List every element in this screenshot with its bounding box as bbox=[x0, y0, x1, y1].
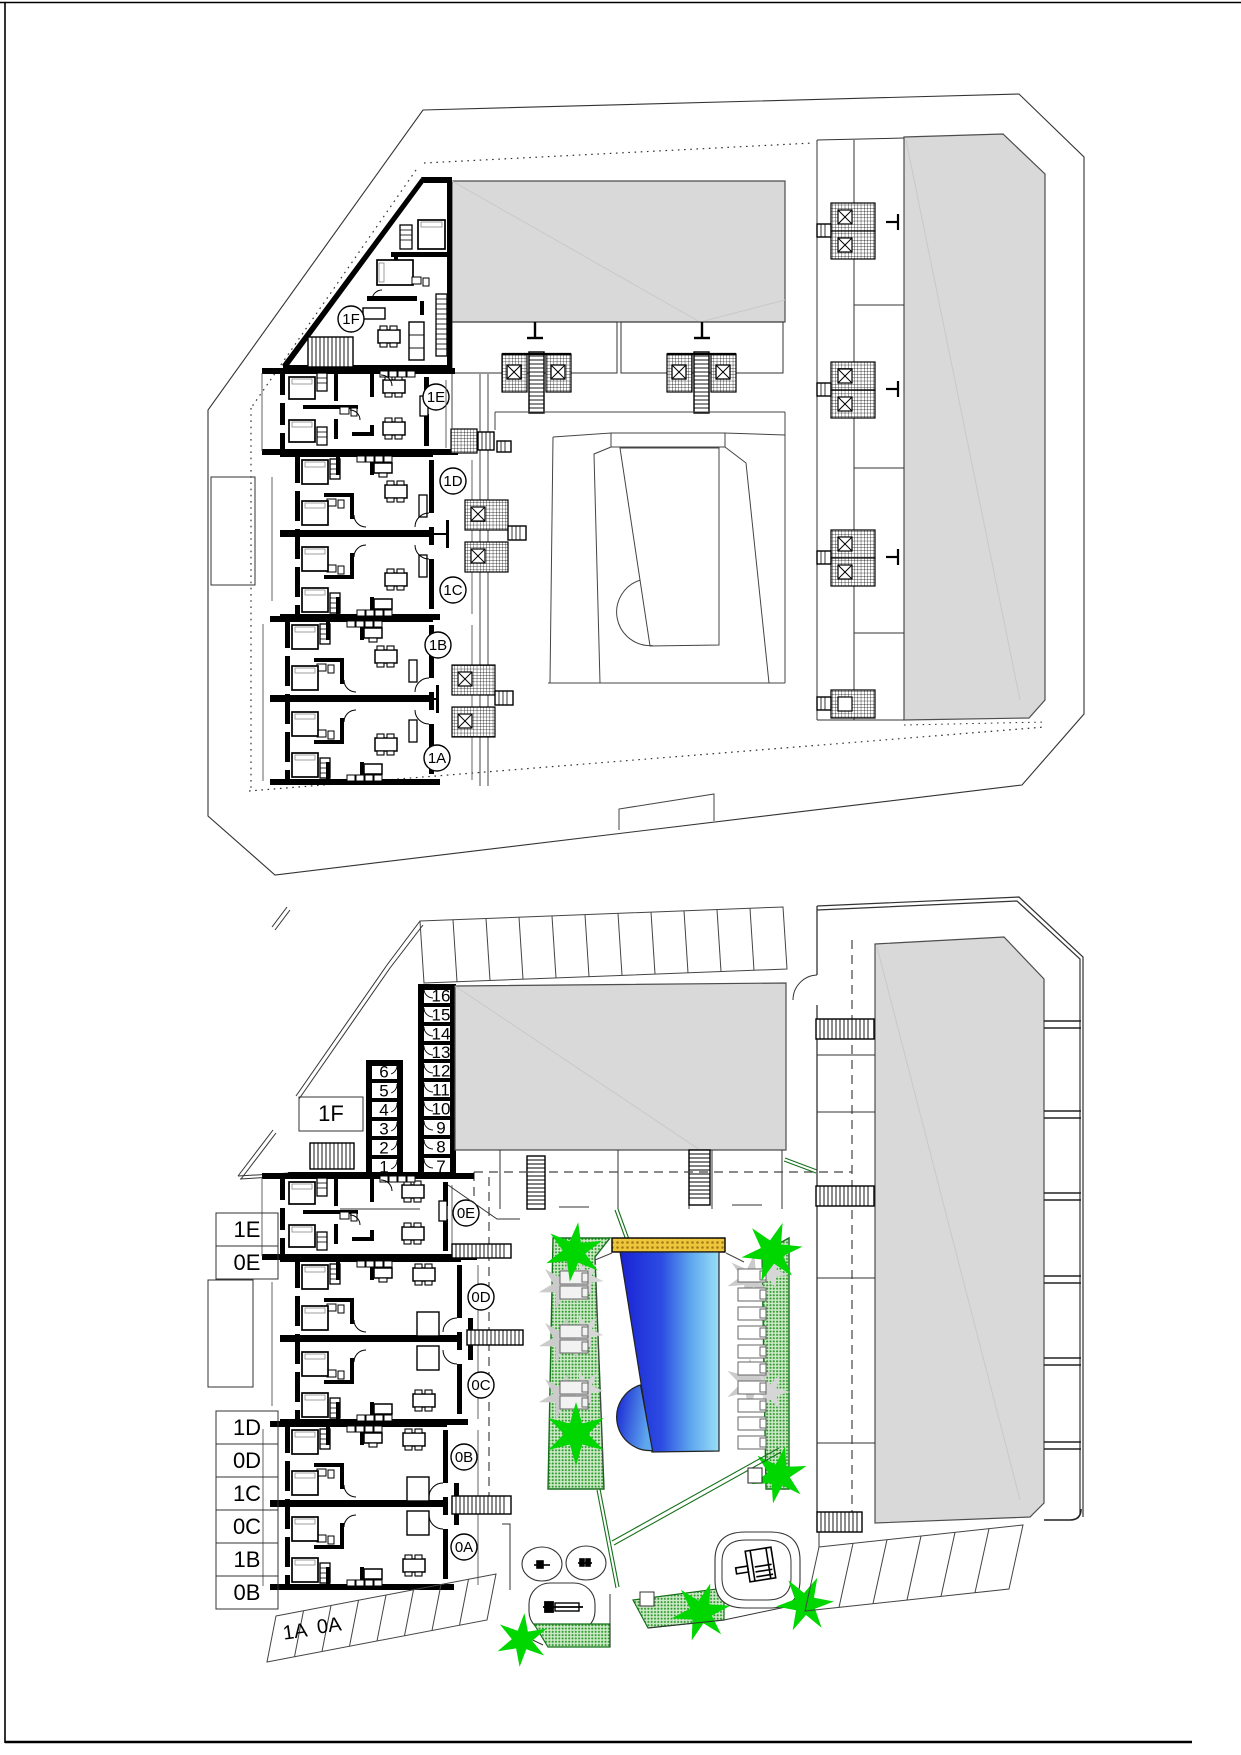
svg-text:1E: 1E bbox=[234, 1217, 261, 1242]
svg-text:0E: 0E bbox=[234, 1250, 261, 1275]
svg-text:15: 15 bbox=[432, 1006, 451, 1025]
svg-text:10: 10 bbox=[432, 1100, 451, 1119]
svg-text:1F: 1F bbox=[318, 1101, 344, 1126]
svg-text:1B: 1B bbox=[234, 1547, 261, 1572]
svg-text:11: 11 bbox=[432, 1081, 450, 1100]
svg-text:1A: 1A bbox=[282, 1619, 310, 1644]
svg-text:0D: 0D bbox=[233, 1448, 261, 1473]
svg-text:1E: 1E bbox=[427, 389, 445, 406]
svg-text:1B: 1B bbox=[429, 637, 447, 654]
svg-text:0A: 0A bbox=[316, 1613, 344, 1638]
svg-text:1C: 1C bbox=[443, 582, 462, 599]
svg-text:0C: 0C bbox=[471, 1377, 490, 1394]
svg-text:0D: 0D bbox=[471, 1289, 490, 1306]
svg-text:12: 12 bbox=[432, 1062, 451, 1081]
svg-text:1C: 1C bbox=[233, 1481, 261, 1506]
svg-text:14: 14 bbox=[432, 1025, 451, 1044]
svg-text:0C: 0C bbox=[233, 1514, 261, 1539]
svg-text:5: 5 bbox=[379, 1082, 388, 1101]
svg-text:3: 3 bbox=[379, 1120, 388, 1139]
svg-text:1D: 1D bbox=[233, 1415, 261, 1440]
svg-text:6: 6 bbox=[379, 1063, 388, 1082]
svg-text:13: 13 bbox=[432, 1043, 451, 1062]
svg-text:1F: 1F bbox=[342, 311, 360, 328]
svg-text:16: 16 bbox=[432, 987, 451, 1006]
svg-text:4: 4 bbox=[379, 1101, 388, 1120]
svg-text:1D: 1D bbox=[443, 473, 462, 490]
svg-text:0E: 0E bbox=[457, 1205, 475, 1222]
svg-text:0A: 0A bbox=[455, 1539, 473, 1556]
svg-text:1A: 1A bbox=[428, 750, 446, 767]
svg-text:0B: 0B bbox=[455, 1449, 473, 1466]
svg-text:8: 8 bbox=[436, 1138, 445, 1157]
svg-text:9: 9 bbox=[436, 1119, 445, 1138]
svg-text:2: 2 bbox=[379, 1139, 388, 1158]
svg-text:0B: 0B bbox=[234, 1580, 261, 1605]
